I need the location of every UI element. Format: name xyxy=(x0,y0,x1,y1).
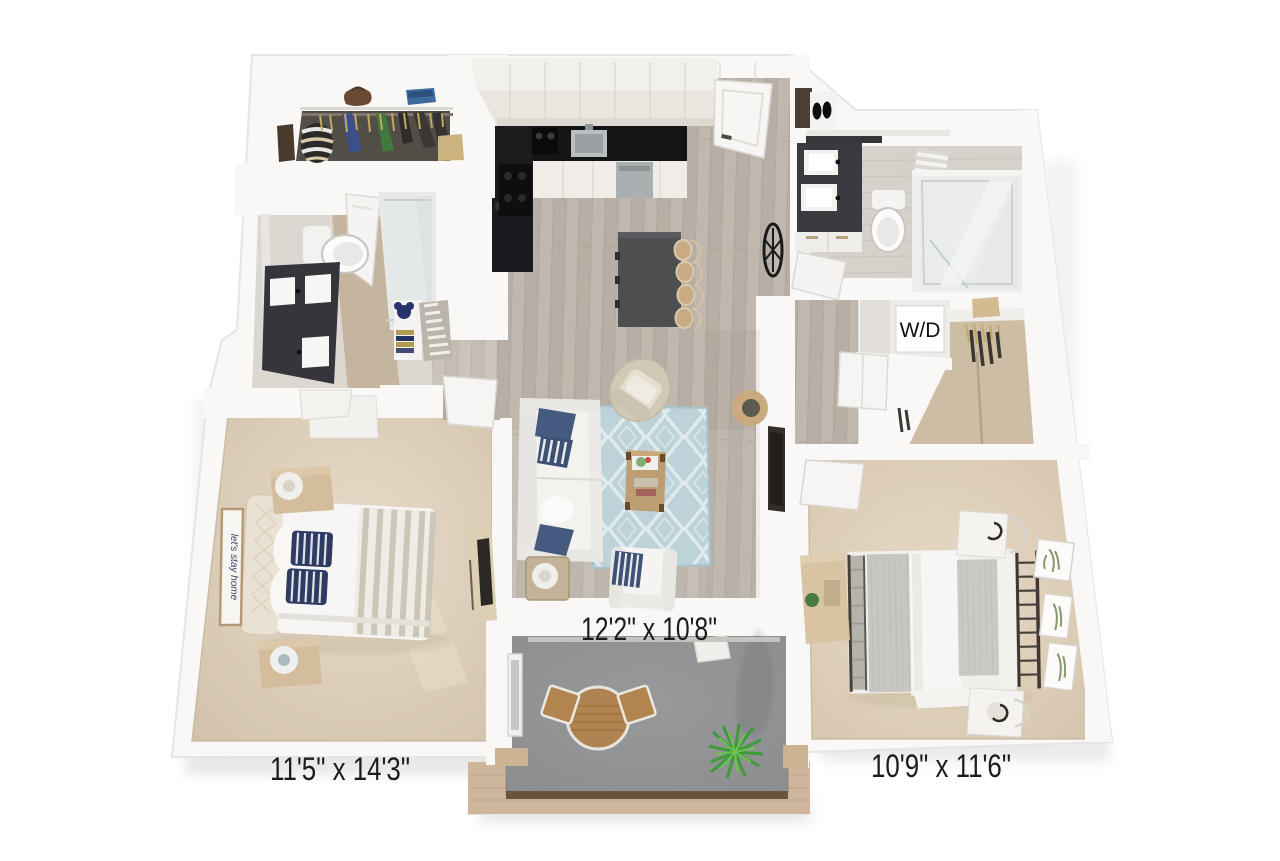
svg-text:let's stay home: let's stay home xyxy=(228,534,239,601)
svg-text:W/D: W/D xyxy=(900,319,941,342)
svg-text:12'2" x 10'8": 12'2" x 10'8" xyxy=(581,611,717,647)
svg-text:11'5" x 14'3": 11'5" x 14'3" xyxy=(270,751,410,787)
svg-text:10'9" x 11'6": 10'9" x 11'6" xyxy=(871,748,1011,784)
